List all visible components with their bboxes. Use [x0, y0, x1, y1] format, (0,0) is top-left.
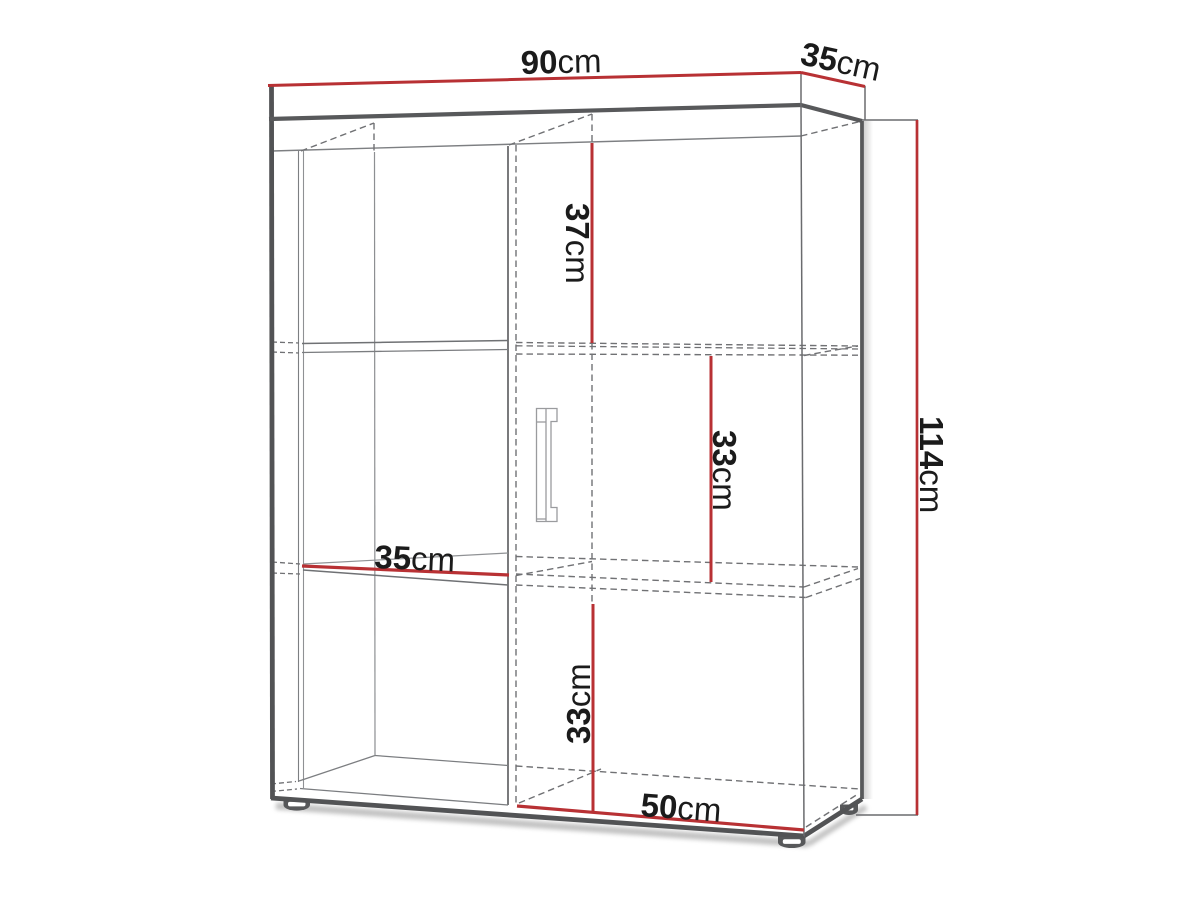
svg-text:35cm: 35cm	[374, 538, 456, 578]
svg-text:37cm: 37cm	[559, 203, 596, 284]
svg-text:33cm: 33cm	[560, 663, 597, 744]
svg-text:50cm: 50cm	[639, 786, 722, 829]
svg-text:33cm: 33cm	[706, 430, 743, 511]
svg-text:90cm: 90cm	[520, 42, 602, 81]
svg-text:114cm: 114cm	[913, 416, 950, 513]
